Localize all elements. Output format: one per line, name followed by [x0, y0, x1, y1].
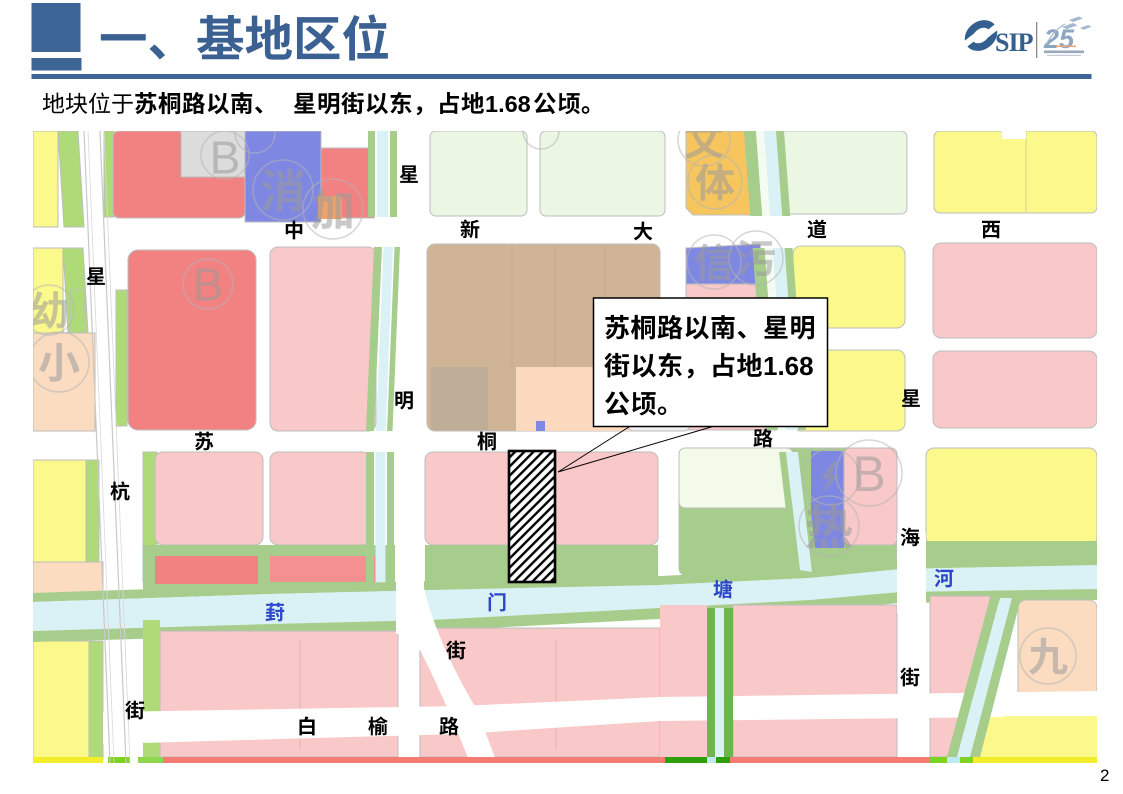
svg-text:1.68: 1.68 — [763, 351, 814, 381]
svg-text:SIP: SIP — [995, 28, 1034, 57]
svg-text:B: B — [193, 259, 224, 311]
svg-text:B: B — [852, 446, 885, 502]
svg-text:2: 2 — [1100, 766, 1109, 785]
svg-text:1.68: 1.68 — [485, 91, 531, 117]
svg-text:B: B — [210, 132, 241, 184]
